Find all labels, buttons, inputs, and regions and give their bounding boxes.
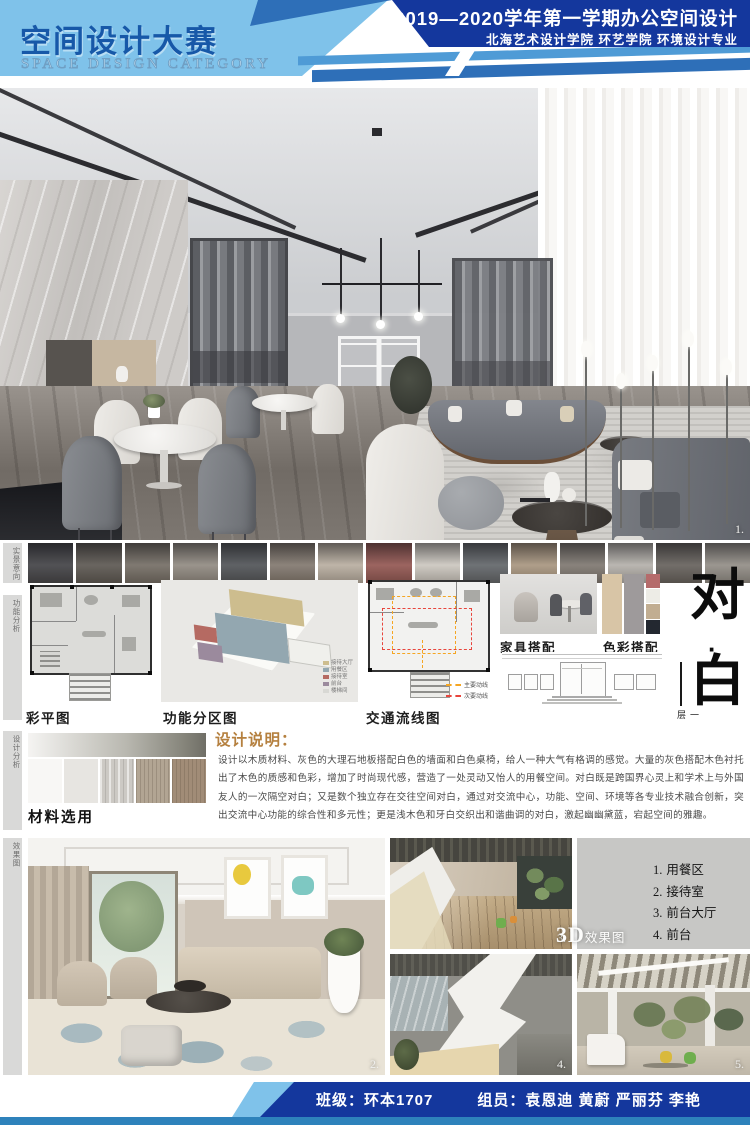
chandelier-drop (380, 238, 382, 322)
zoning-label: 功能分区图 (163, 707, 238, 727)
class-label: 班级：环本1707 (316, 1089, 433, 1110)
color-swatch (646, 604, 660, 618)
image-number: 4. (557, 1057, 566, 1072)
table-base (146, 482, 182, 489)
sofa-pillow (560, 406, 574, 422)
area-list-item: 3.前台大厅 (653, 903, 729, 925)
image-number: 2. (370, 1057, 379, 1072)
floor-lamp (726, 374, 728, 524)
footer-bottom-bar (0, 1117, 750, 1125)
reference-thumbnail (173, 543, 218, 583)
poster-title: 空间设计大赛 (20, 16, 218, 61)
books (520, 498, 550, 502)
sofa-pillow (614, 536, 644, 540)
hero-rendering: 1. (0, 88, 750, 540)
highback-armchair (366, 424, 444, 540)
coffee-table (512, 500, 612, 534)
materials-label: 材料选用 (28, 806, 94, 827)
reference-thumbnail (125, 543, 170, 583)
color-swatch (646, 574, 660, 588)
area-list-item: 5.大厅接待区 (653, 946, 729, 949)
palette-large (602, 574, 644, 634)
chair-silhouette (580, 593, 592, 615)
decor-ball (562, 488, 576, 502)
competition-poster: 空间设计大赛 SPACE DESIGN CATEGORY 2019—2020学年… (0, 0, 750, 1125)
chair-leg (244, 534, 246, 540)
reference-thumbnail (221, 543, 266, 583)
chandelier-bulb (336, 314, 345, 323)
dining-chair (312, 384, 344, 434)
sofa-pillow (448, 406, 462, 422)
description-body: 设计以木质材料、灰色的大理石地板搭配白色的墙面和白色桌椅，给人一种大气有格调的感… (218, 752, 744, 826)
chair-leg (212, 532, 214, 540)
description-title: 设计说明： (215, 728, 298, 750)
floor-lamp (652, 370, 654, 530)
decor-plant (390, 356, 432, 414)
circulation-legend-row: 主要动线 (446, 680, 488, 689)
dining-chair (62, 436, 122, 530)
axonometric-model (184, 588, 327, 684)
render-front-desk: 4. (390, 954, 572, 1075)
chair-leg (110, 530, 112, 540)
elevation-drawing (502, 652, 662, 704)
school-line: 北海艺术设计学院 环艺学院 环境设计专业 (486, 29, 738, 48)
floor-lamp (585, 356, 587, 526)
sofa-pillow (618, 460, 652, 490)
entrance-stairs (69, 673, 111, 701)
zoning-legend-row: 前台 (323, 681, 353, 687)
circulation-legend-row: 次要动线 (446, 691, 488, 700)
zoning-legend-row: 用餐区 (323, 667, 353, 673)
chair-leg (78, 528, 80, 540)
area-list-item: 4.前台 (653, 925, 729, 947)
side-tab-renders: 效果图 (3, 838, 22, 1075)
furniture-match-image (500, 574, 597, 634)
chair-silhouette (550, 594, 562, 616)
material-swatches (28, 759, 206, 803)
render-hall-reception: 5. (577, 954, 750, 1075)
zoning-legend: 接待大厅 用餐区 接待室 前台 楼梯间 (323, 659, 353, 694)
side-tab-function: 功能分析 (3, 595, 22, 720)
table-plant (143, 394, 165, 408)
dining-chair (198, 444, 256, 534)
area-list: 1.用餐区 2.接待室 3.前台大厅 4.前台 5.大厅接待区 (653, 860, 729, 949)
theme-char-1: 对 (690, 568, 745, 623)
reference-thumbnail (28, 543, 73, 583)
display-niche (46, 340, 156, 392)
table-leg (568, 606, 571, 622)
area-list-item: 2.接待室 (653, 882, 729, 904)
table-stem (281, 410, 286, 430)
circulation-legend: 主要动线 次要动线 (446, 678, 488, 700)
sofa-pillow (640, 492, 680, 528)
chandelier-bulb (414, 312, 423, 321)
ceiling-light (372, 128, 382, 136)
render-front-lobby: 3. (390, 838, 572, 949)
table-stem (160, 450, 168, 484)
poster-title-english: SPACE DESIGN CATEGORY (21, 56, 271, 73)
course-title: 2019—2020学年第一学期办公空间设计 (394, 5, 738, 31)
area-list-item: 1.用餐区 (653, 860, 729, 882)
color-plan-diagram (25, 578, 158, 704)
theme-title: 对 · 白 一层 (678, 562, 750, 724)
floor-lamp (688, 346, 690, 531)
footer-navy-band: 班级：环本1707 组员：袁恩迪 黄蔚 严丽芬 李艳 (260, 1082, 750, 1117)
metal-gradient-bar (28, 733, 206, 757)
material-swatch (172, 759, 206, 803)
pouf (438, 476, 504, 530)
theme-char-2: 白 (690, 654, 745, 709)
theme-divider-line (680, 662, 682, 706)
circulation-diagram: 主要动线 次要动线 (364, 576, 495, 704)
sofa-pillow (506, 400, 522, 416)
palette-small (646, 574, 660, 634)
color-swatch (602, 574, 622, 634)
zoning-legend-row: 接待室 (323, 674, 353, 680)
flow-plan-outline (368, 580, 490, 672)
color-swatch (624, 574, 644, 634)
zoning-diagram: 接待大厅 用餐区 接待室 前台 楼梯间 (161, 580, 358, 702)
color-plan-label: 彩平图 (26, 707, 71, 727)
color-swatch (646, 589, 660, 603)
reference-thumbnail (76, 543, 121, 583)
floor-lamp (620, 388, 622, 528)
chandelier-drop (418, 250, 420, 314)
members-label: 组员：袁恩迪 黄蔚 严丽芬 李艳 (477, 1089, 701, 1110)
zoning-legend-row: 接待大厅 (323, 660, 353, 666)
material-swatch (136, 759, 170, 803)
material-swatch (28, 759, 62, 803)
chandelier-drop (340, 248, 342, 316)
render-reception-room: 2. (28, 838, 385, 1075)
armchair-silhouette (514, 592, 538, 622)
chandelier-bulb (376, 320, 385, 329)
footer: 班级：环本1707 组员：袁恩迪 黄蔚 严丽芬 李艳 (0, 1078, 750, 1125)
renders-3d-label: 3D效果图 (556, 922, 625, 948)
image-number: 5. (735, 1057, 744, 1072)
material-swatch (64, 759, 98, 803)
plan-outline (30, 585, 152, 675)
side-tab-reference: 实景意向 (3, 543, 22, 583)
reference-thumbnail (318, 543, 363, 583)
material-swatch (100, 759, 134, 803)
side-tab-design: 设计分析 (3, 731, 22, 830)
entrance-stairs (410, 672, 450, 698)
zoning-legend-row: 楼梯间 (323, 688, 353, 694)
color-swatch (646, 620, 660, 634)
image-number: 1. (735, 522, 744, 537)
reference-thumbnail (270, 543, 315, 583)
header: 空间设计大赛 SPACE DESIGN CATEGORY 2019—2020学年… (0, 0, 750, 88)
floor-label: 一层 (675, 710, 701, 724)
circulation-label: 交通流线图 (366, 707, 441, 727)
dining-chair (226, 386, 260, 438)
color-match-swatches (602, 574, 674, 634)
